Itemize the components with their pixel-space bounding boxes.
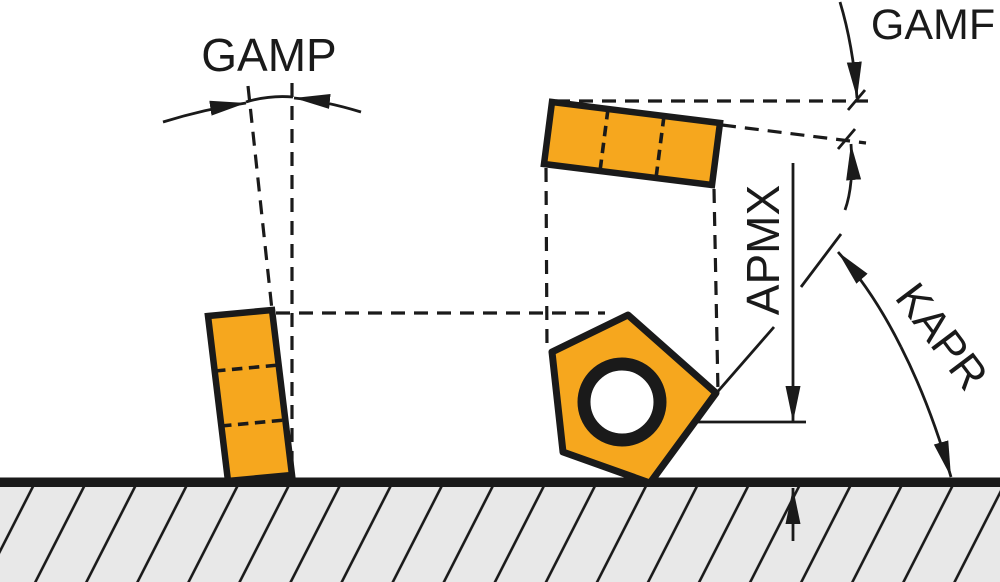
workpiece-surface-line (0, 478, 1000, 488)
insert-feed-view (544, 102, 720, 185)
gamf-label: GAMF (866, 4, 1000, 47)
insert-front-view (552, 315, 716, 483)
tool-geometry-diagram: GAMP GAMF APMX KAPR (0, 0, 1000, 582)
gamf-upper-arrow (840, 2, 857, 98)
diagram-drawing (0, 0, 1000, 582)
gamp-left-arrow (163, 103, 246, 122)
gamp-label: GAMP (196, 32, 342, 78)
gamp-dimension (163, 97, 361, 122)
kapr-edge-line (713, 327, 774, 397)
kapr-edge-line (801, 234, 841, 287)
workpiece (0, 478, 1000, 582)
insert-feed-view-body (544, 102, 720, 185)
gamf-dimension (838, 2, 865, 210)
gamf-lower-arrow (845, 144, 852, 210)
workpiece-hatch (0, 486, 1000, 582)
right-vertical-projection-line (714, 189, 718, 392)
apmx-label: APMX (740, 185, 786, 315)
insert-side-view (208, 310, 292, 481)
gamp-right-arrow (294, 98, 361, 112)
insert-side-view-body (208, 310, 292, 481)
insert-screw-hole (584, 364, 660, 440)
gamp-arc (246, 97, 293, 102)
left-vertical-projection-line (546, 168, 547, 350)
gamp-tilted-reference-line (248, 86, 272, 310)
